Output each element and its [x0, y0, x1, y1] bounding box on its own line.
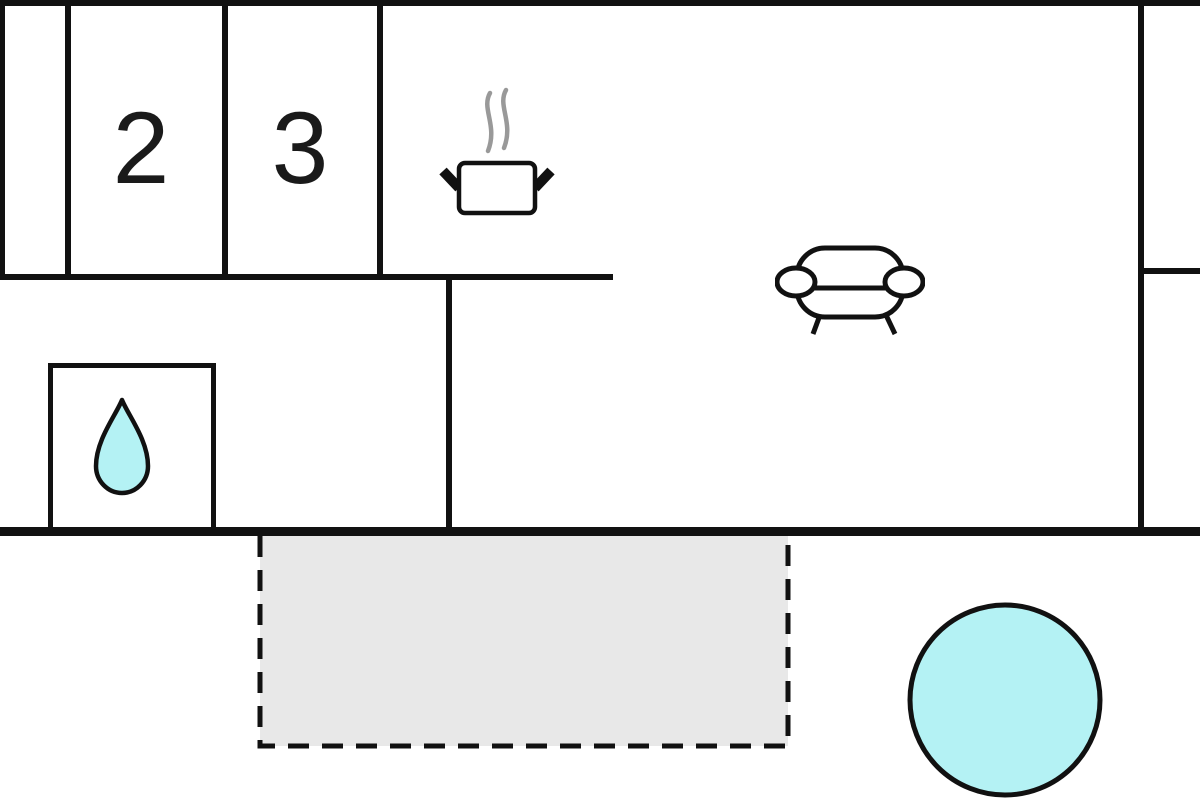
steam-icon	[487, 90, 507, 151]
floor-plan: 2 3	[0, 0, 1200, 800]
wall-kitchen-divider	[446, 274, 452, 530]
bathroom-wall-right	[211, 363, 216, 530]
pool-circle-shape	[910, 605, 1100, 795]
wall-right-vertical	[1138, 0, 1144, 533]
terrace-area	[257, 536, 791, 752]
bathroom-wall-left	[48, 363, 53, 530]
pool-circle-icon	[905, 602, 1105, 800]
sofa-armrest-left	[777, 268, 815, 296]
wall-rooms-bottom	[0, 274, 613, 280]
wall-room-divider-1	[65, 0, 71, 280]
sofa-leg-right	[886, 315, 895, 334]
wall-bottom-main	[0, 527, 1200, 536]
wall-right-section-horizontal	[1138, 268, 1200, 274]
wall-top	[0, 0, 1200, 6]
sofa-armrest-right	[885, 268, 923, 296]
sofa-icon	[775, 240, 925, 340]
cooking-pot-icon	[437, 85, 557, 220]
wall-room-divider-2	[222, 0, 228, 280]
wall-left	[0, 0, 5, 280]
pot-body	[459, 163, 535, 213]
wall-room-divider-3	[377, 0, 383, 280]
room-3-label: 3	[272, 97, 329, 199]
pot-handle-left	[443, 171, 459, 188]
water-drop-shape	[96, 400, 148, 493]
water-drop-icon	[92, 396, 152, 498]
bathroom-wall-top	[48, 363, 216, 368]
terrace-dashed-border	[260, 536, 788, 746]
pot-handle-right	[535, 171, 551, 188]
room-2-label: 2	[113, 97, 170, 199]
